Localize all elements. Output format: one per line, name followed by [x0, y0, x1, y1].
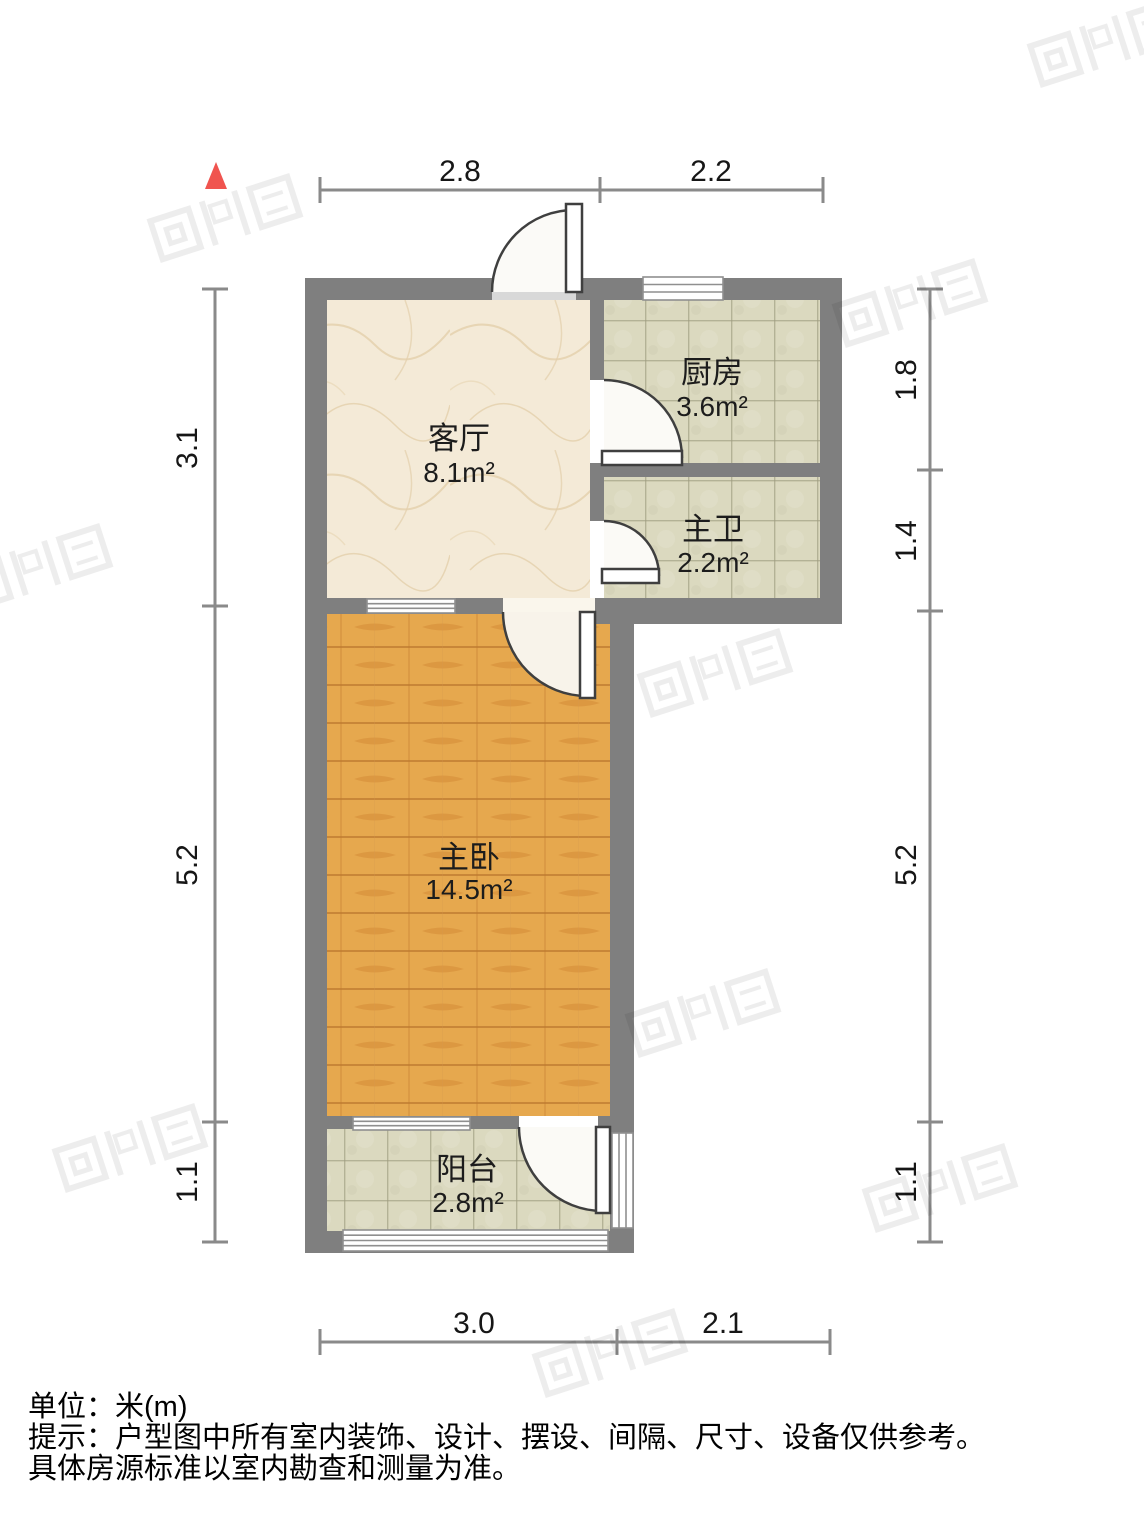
- balcony-door-panel: [596, 1127, 610, 1213]
- dim-label-right-4: 1.1: [890, 1161, 923, 1203]
- bathroom-name: 主卫: [682, 512, 744, 547]
- living-bedroom-window: [367, 599, 455, 613]
- dim-top: [320, 177, 823, 203]
- bathroom-door-panel: [602, 569, 659, 583]
- footer-notes: 单位：米(m) 提示：户型图中所有室内装饰、设计、摆设、间隔、尺寸、设备仅供参考…: [28, 1392, 1128, 1485]
- dim-label-right-2: 1.4: [890, 520, 923, 562]
- kitchen-window: [643, 277, 723, 300]
- dim-label-top-1: 2.8: [439, 155, 481, 188]
- living-room-name: 客厅: [428, 421, 490, 456]
- balcony-name: 阳台: [436, 1152, 498, 1187]
- dim-label-left-1: 3.1: [171, 427, 204, 469]
- kitchen-door-panel: [602, 451, 682, 465]
- living-room-area: 8.1m²: [423, 457, 495, 488]
- dim-label-right-1: 1.8: [890, 359, 923, 401]
- dim-bottom: [320, 1329, 830, 1355]
- balcony-right-window: [612, 1133, 633, 1228]
- entry-door: [492, 204, 582, 292]
- wall-right-upper: [820, 278, 842, 624]
- kitchen-area: 3.6m²: [676, 391, 748, 422]
- balcony-area: 2.8m²: [432, 1187, 504, 1218]
- bedroom-name: 主卧: [438, 840, 500, 875]
- floor-plan: 2.8 2.2 3.0 2.1 3.1 5.2 1.1 1.8 1.4 5.2 …: [0, 0, 1144, 1530]
- kitchen-name: 厨房: [681, 355, 743, 390]
- bedroom-door-panel: [580, 612, 595, 698]
- dim-label-top-2: 2.2: [690, 155, 732, 188]
- entry-door-panel: [566, 204, 582, 292]
- dim-label-left-2: 5.2: [171, 844, 204, 886]
- dim-right: [917, 289, 943, 1242]
- dim-label-left-3: 1.1: [171, 1161, 204, 1203]
- bedroom-balcony-window: [353, 1117, 470, 1130]
- unit-note: 单位：米(m): [28, 1392, 1128, 1423]
- dim-label-bottom-1: 3.0: [453, 1307, 495, 1340]
- wall-left: [305, 278, 327, 1253]
- bedroom-area: 14.5m²: [425, 874, 512, 905]
- floors: [327, 300, 820, 1231]
- north-arrow-icon: [205, 162, 227, 189]
- disclaimer-line-1: 提示：户型图中所有室内装饰、设计、摆设、间隔、尺寸、设备仅供参考。: [28, 1423, 1128, 1454]
- floor-plan-page: 2.8 2.2 3.0 2.1 3.1 5.2 1.1 1.8 1.4 5.2 …: [0, 0, 1144, 1530]
- disclaimer-line-2: 具体房源标准以室内勘查和测量为准。: [28, 1454, 1128, 1485]
- dim-label-right-3: 5.2: [890, 844, 923, 886]
- bathroom-door-opening: [590, 521, 604, 598]
- dim-left: [202, 289, 228, 1242]
- balcony-bottom-window: [343, 1230, 608, 1251]
- bathroom-area: 2.2m²: [677, 547, 749, 578]
- dim-label-bottom-2: 2.1: [702, 1307, 744, 1340]
